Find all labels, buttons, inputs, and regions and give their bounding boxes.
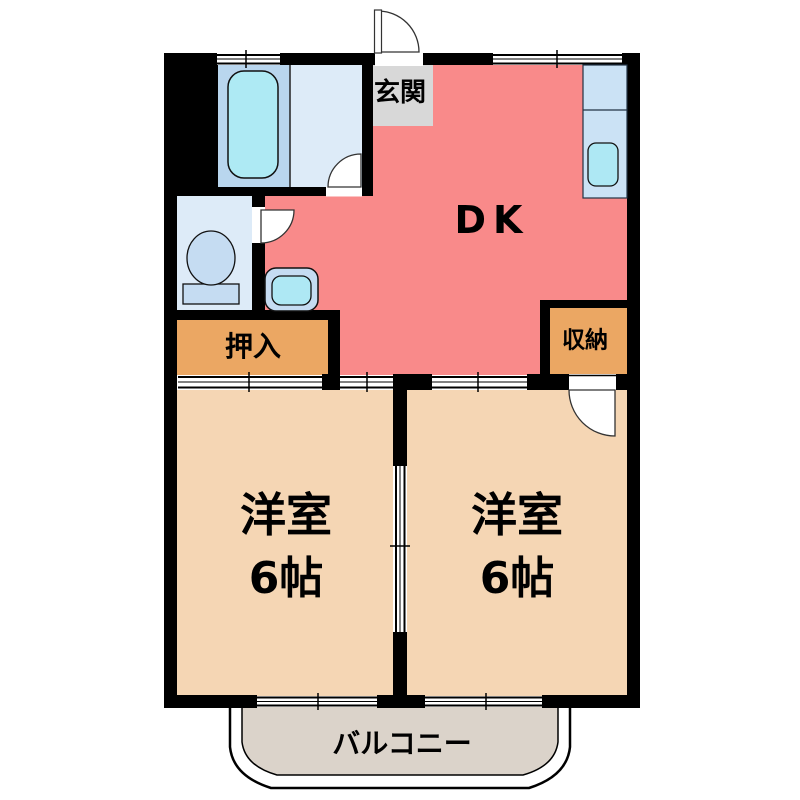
room-left-name: 洋室 bbox=[240, 483, 332, 548]
entrance-label: 玄関 bbox=[374, 80, 426, 106]
wall-partition-top bbox=[393, 374, 407, 466]
room-right-size: 6帖 bbox=[471, 548, 563, 610]
dk-label: DK bbox=[455, 201, 530, 239]
room-right-name: 洋室 bbox=[471, 483, 563, 548]
wall-band-1 bbox=[322, 374, 340, 390]
room-right-label: 洋室 6帖 bbox=[471, 483, 563, 611]
entrance-door bbox=[375, 10, 424, 66]
oshiire-label: 押入 bbox=[225, 333, 281, 361]
wall-bath-bottom bbox=[218, 187, 326, 196]
sliding-door-oshiire bbox=[178, 372, 322, 392]
wall-bottom-3 bbox=[542, 695, 640, 708]
storage-doorway bbox=[569, 374, 616, 390]
shunou-label: 収納 bbox=[562, 330, 608, 353]
wall-top-2 bbox=[280, 53, 375, 65]
washbasin-bowl bbox=[272, 276, 311, 305]
sliding-door-dk-room-right bbox=[432, 372, 527, 392]
wall-shunou-top bbox=[540, 300, 627, 308]
wall-band-3 bbox=[527, 374, 569, 390]
kitchen-counter bbox=[583, 65, 627, 198]
wall-shunou-left bbox=[540, 300, 550, 376]
entrance-door-swing-icon bbox=[378, 11, 419, 52]
room-left-label: 洋室 6帖 bbox=[240, 483, 332, 611]
wall-toilet-bottom bbox=[164, 310, 340, 320]
floor-plan: 玄関 DK 押入 収納 洋室 6帖 洋室 6帖 バルコニー bbox=[0, 0, 800, 800]
washroom-doorway bbox=[326, 187, 362, 197]
bathtub bbox=[228, 71, 278, 178]
wall-bottom-1 bbox=[164, 695, 257, 708]
wall-left bbox=[164, 53, 177, 708]
toilet-icon bbox=[187, 231, 235, 285]
room-left-size: 6帖 bbox=[240, 548, 332, 610]
entrance-door-leaf bbox=[375, 10, 382, 53]
kitchen-sink bbox=[588, 143, 618, 186]
sliding-door-dk-room-left bbox=[340, 372, 393, 392]
toilet-tank bbox=[183, 284, 239, 304]
wall-top-3 bbox=[423, 53, 493, 65]
wall-entrance-left bbox=[362, 53, 373, 196]
balcony-label: バルコニー bbox=[332, 730, 471, 758]
entrance-doorway bbox=[375, 52, 423, 66]
wall-bottom-2 bbox=[377, 695, 425, 708]
floor-plan-drawing bbox=[0, 0, 800, 800]
wall-band-4 bbox=[616, 374, 640, 390]
